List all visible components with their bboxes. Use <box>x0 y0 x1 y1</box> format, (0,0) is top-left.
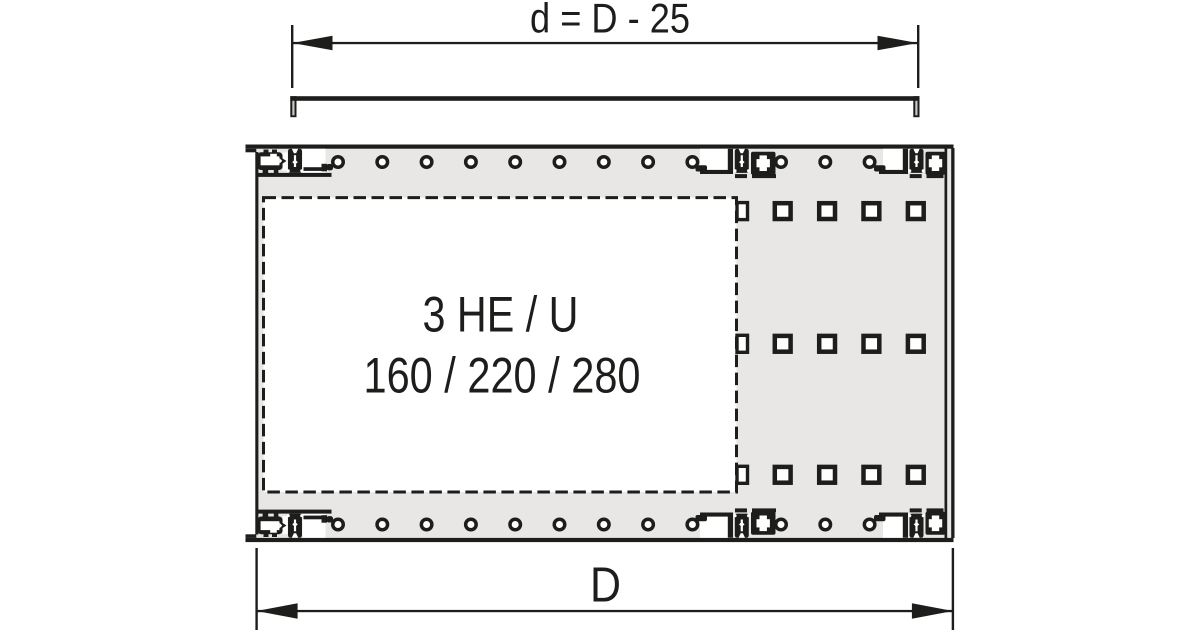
svg-text:160 / 220 / 280: 160 / 220 / 280 <box>364 348 641 404</box>
svg-text:d = D - 25: d = D - 25 <box>530 0 690 42</box>
svg-text:3 HE / U: 3 HE / U <box>423 287 579 343</box>
svg-text:D: D <box>590 559 621 613</box>
